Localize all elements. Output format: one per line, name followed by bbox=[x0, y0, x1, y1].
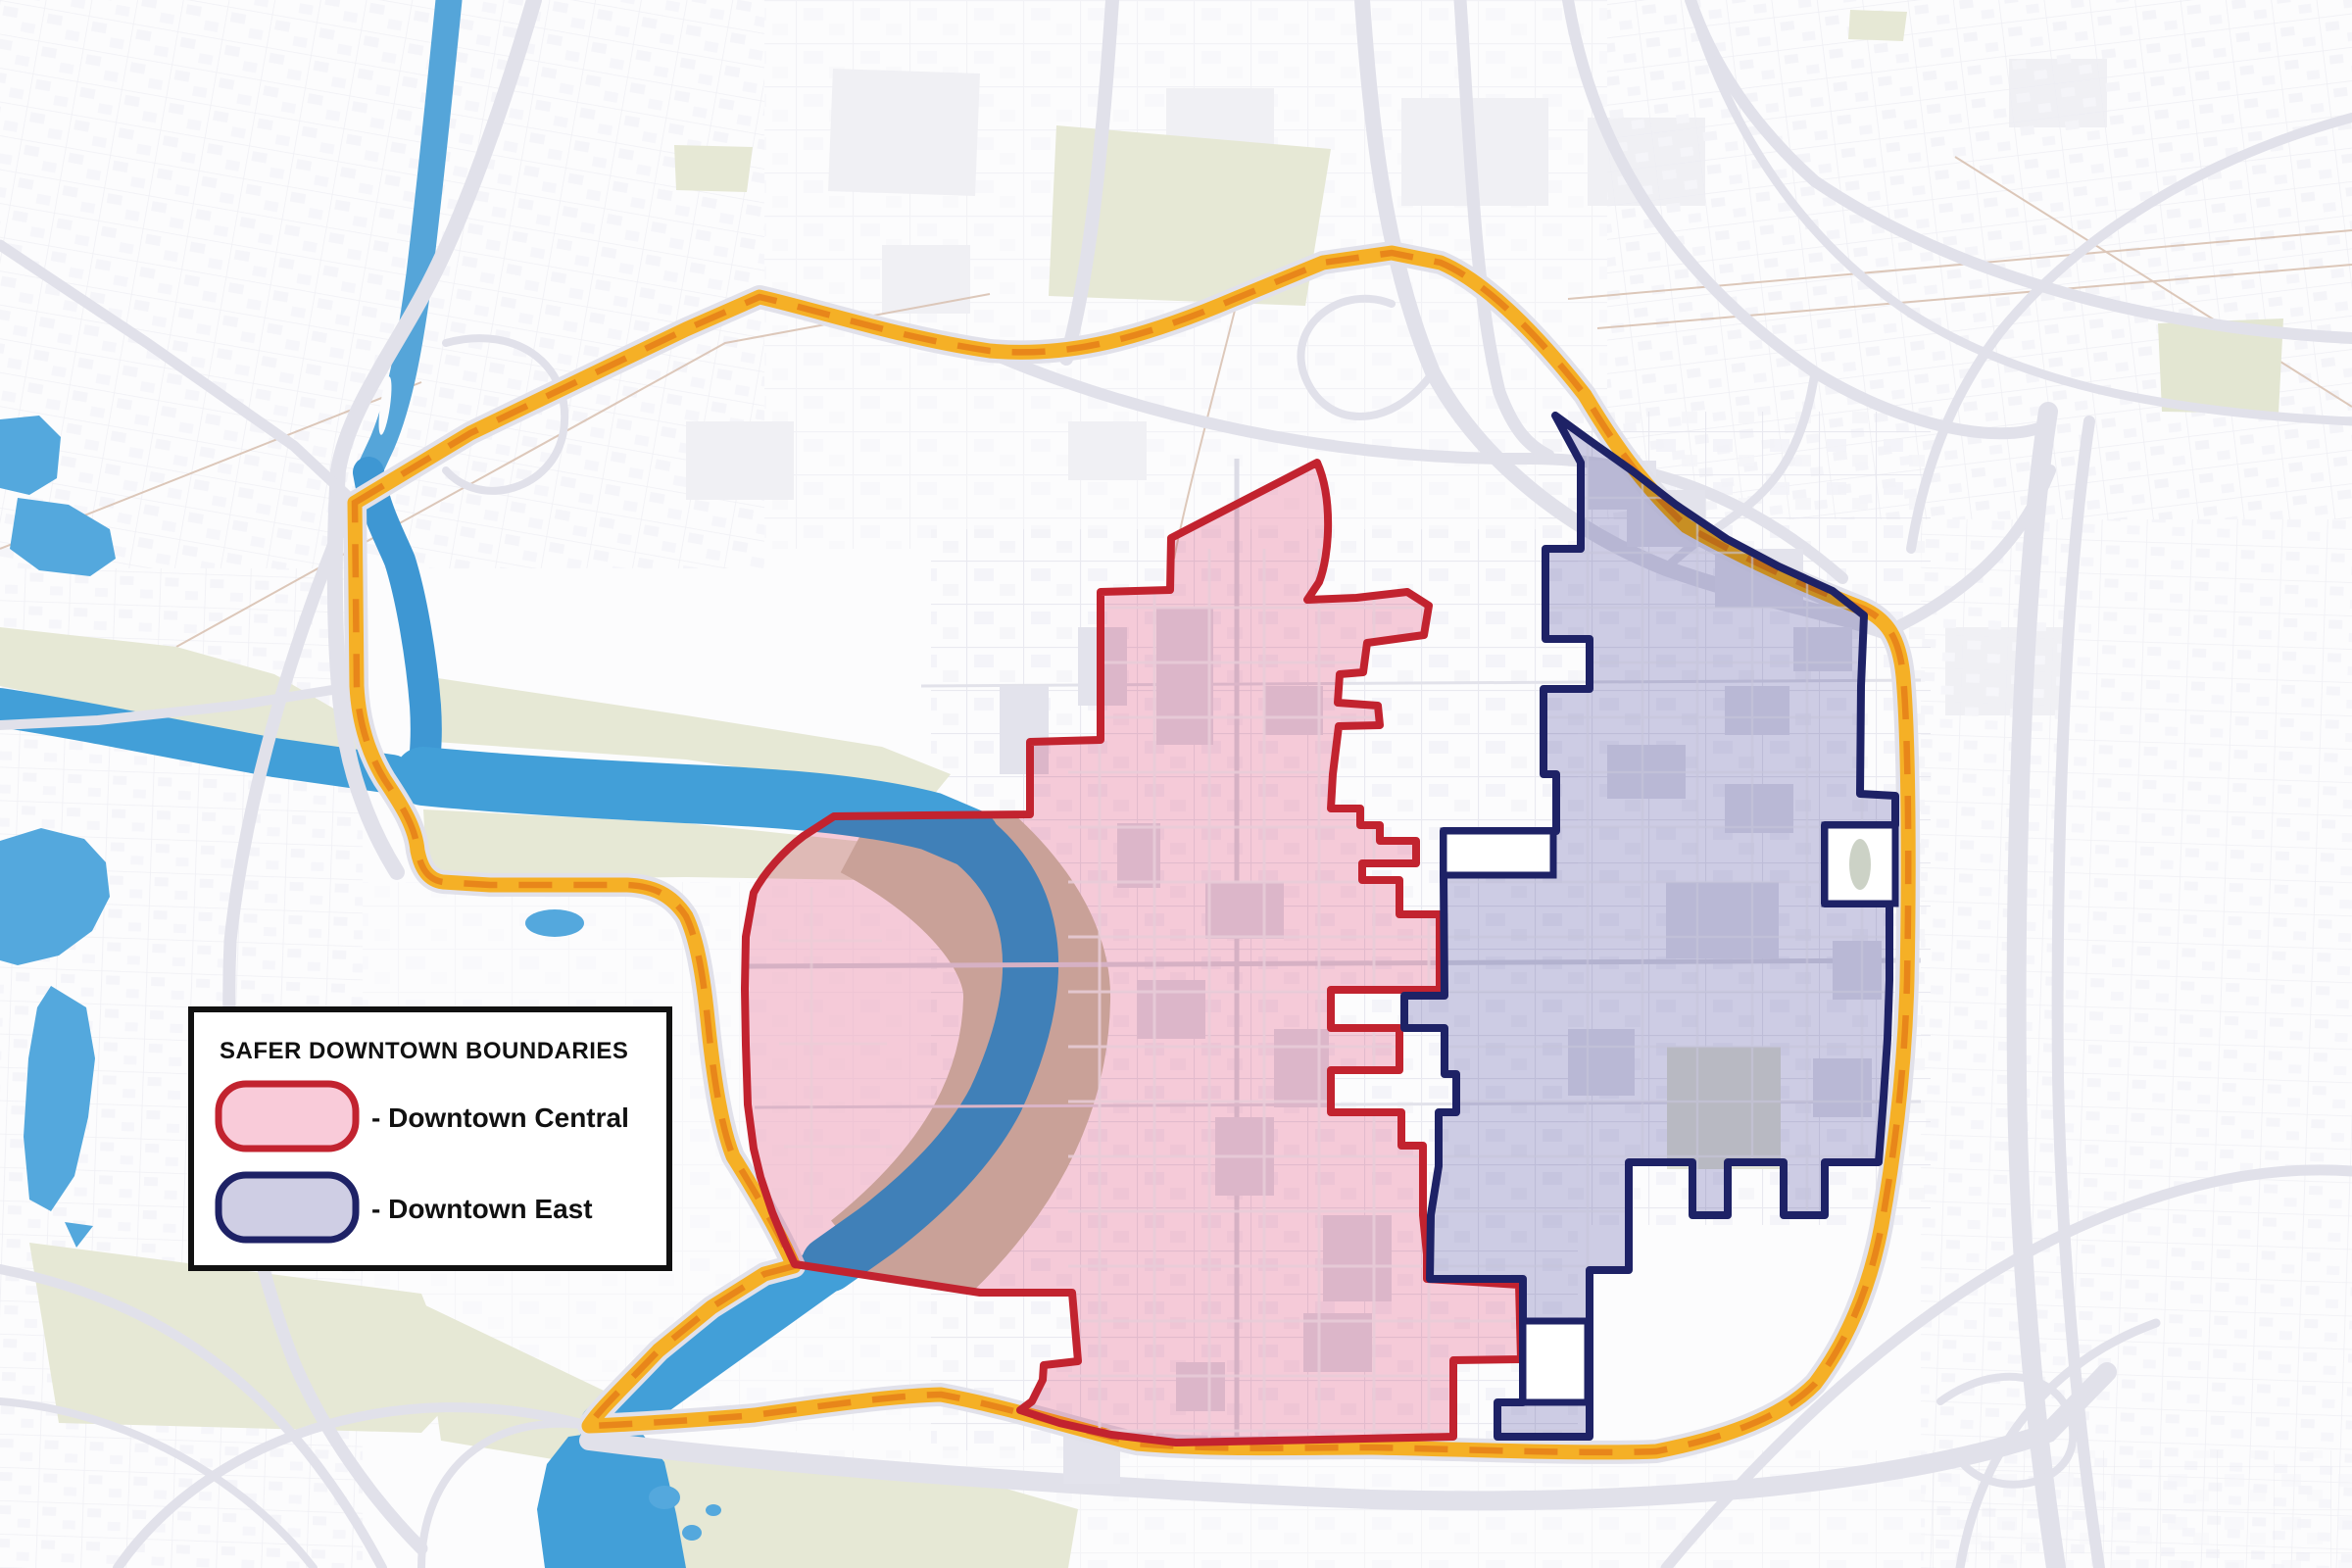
svg-text:SAFER DOWNTOWN BOUNDARIES: SAFER DOWNTOWN BOUNDARIES bbox=[220, 1038, 628, 1064]
svg-text:- Downtown Central: - Downtown Central bbox=[371, 1102, 629, 1133]
svg-text:- Downtown East: - Downtown East bbox=[371, 1194, 593, 1224]
